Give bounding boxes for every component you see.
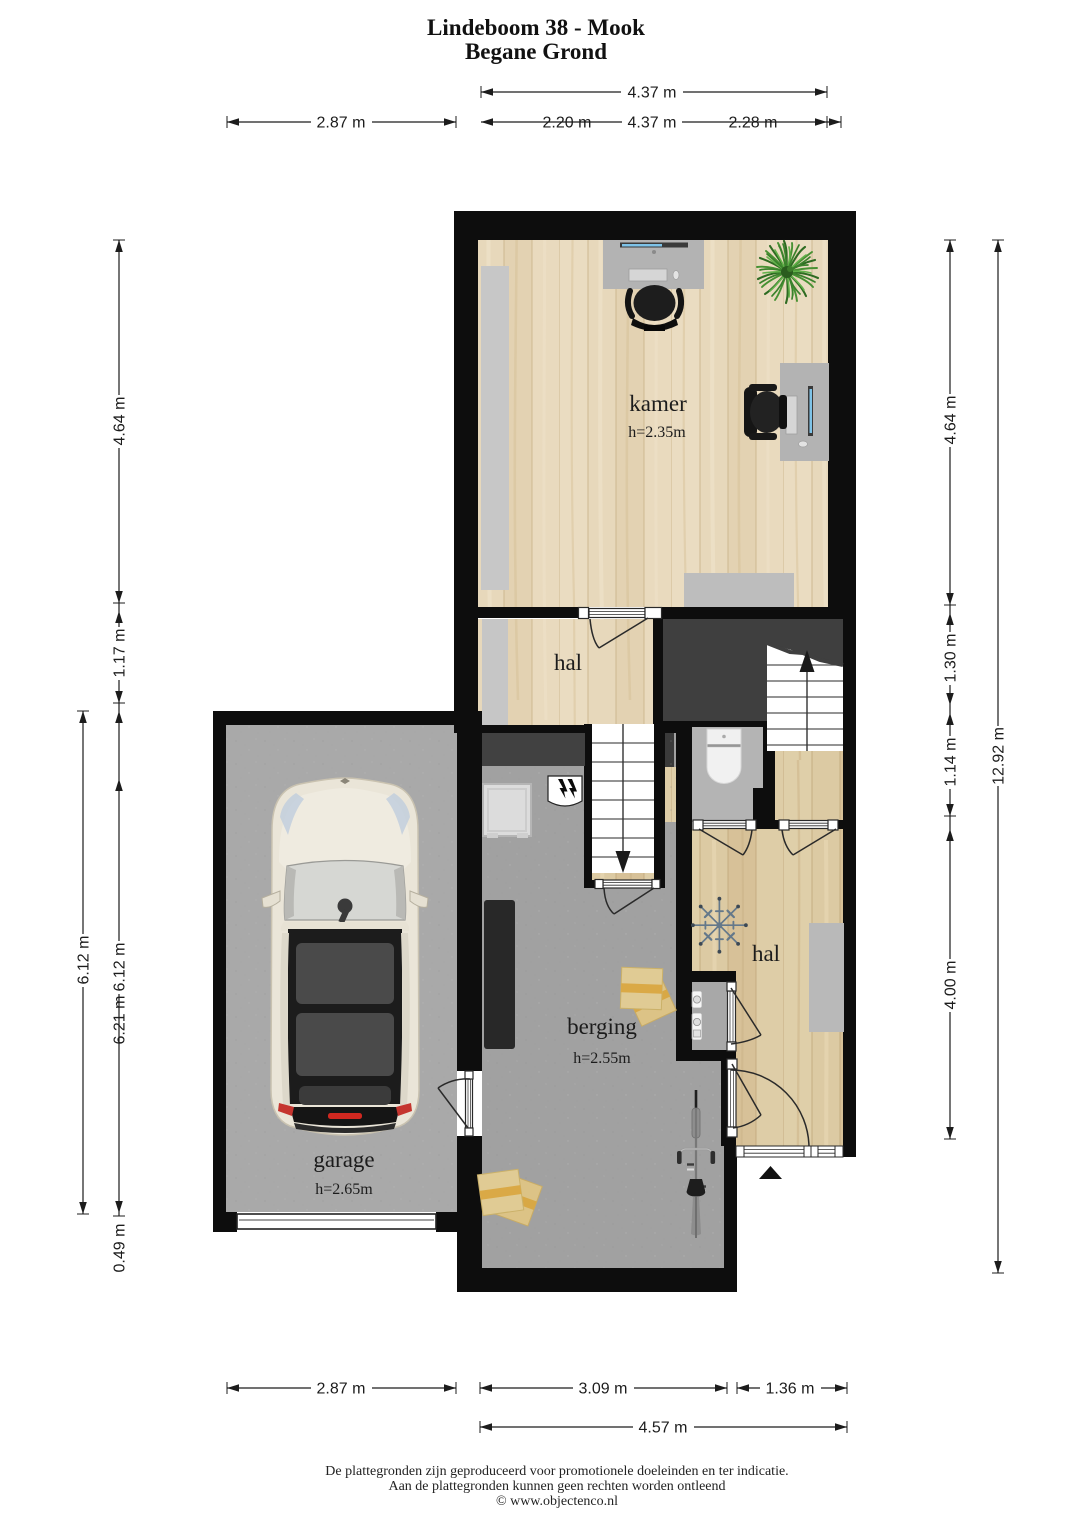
svg-text:1.30 m: 1.30 m <box>943 634 960 683</box>
svg-text:4.00 m: 4.00 m <box>943 961 960 1010</box>
svg-text:4.37 m: 4.37 m <box>628 115 677 132</box>
svg-text:Lindeboom 38 - Mook: Lindeboom 38 - Mook <box>427 15 645 40</box>
svg-text:6.12 m: 6.12 m <box>112 943 129 992</box>
svg-text:h=2.35m: h=2.35m <box>628 424 686 441</box>
svg-text:4.57 m: 4.57 m <box>639 1420 688 1437</box>
svg-text:garage: garage <box>313 1147 374 1172</box>
svg-text:1.36 m: 1.36 m <box>766 1381 815 1398</box>
svg-text:hal: hal <box>752 941 780 966</box>
svg-text:Aan de plattegronden kunnen ge: Aan de plattegronden kunnen geen rechten… <box>388 1479 725 1494</box>
svg-text:4.64 m: 4.64 m <box>112 397 129 446</box>
svg-text:De plattegronden zijn geproduc: De plattegronden zijn geproduceerd voor … <box>325 1464 788 1479</box>
svg-text:kamer: kamer <box>629 391 687 416</box>
svg-text:h=2.65m: h=2.65m <box>315 1181 373 1198</box>
svg-text:2.87 m: 2.87 m <box>317 1381 366 1398</box>
svg-text:2.87 m: 2.87 m <box>317 115 366 132</box>
svg-text:6.12 m: 6.12 m <box>76 936 93 985</box>
svg-text:h=2.55m: h=2.55m <box>573 1050 631 1067</box>
svg-text:4.64 m: 4.64 m <box>943 396 960 445</box>
svg-text:2.28 m: 2.28 m <box>729 115 778 132</box>
svg-text:12.92 m: 12.92 m <box>991 727 1008 785</box>
svg-text:4.37 m: 4.37 m <box>628 85 677 102</box>
svg-text:2.20 m: 2.20 m <box>543 115 592 132</box>
svg-text:berging: berging <box>567 1014 637 1039</box>
svg-text:6.21 m: 6.21 m <box>112 996 129 1045</box>
svg-text:© www.objectenco.nl: © www.objectenco.nl <box>496 1494 618 1509</box>
svg-text:1.14 m: 1.14 m <box>943 738 960 787</box>
svg-text:Begane Grond: Begane Grond <box>465 39 607 64</box>
svg-text:1.17 m: 1.17 m <box>112 629 129 678</box>
svg-text:0.49 m: 0.49 m <box>112 1224 129 1273</box>
svg-text:hal: hal <box>554 650 582 675</box>
svg-text:3.09 m: 3.09 m <box>579 1381 628 1398</box>
